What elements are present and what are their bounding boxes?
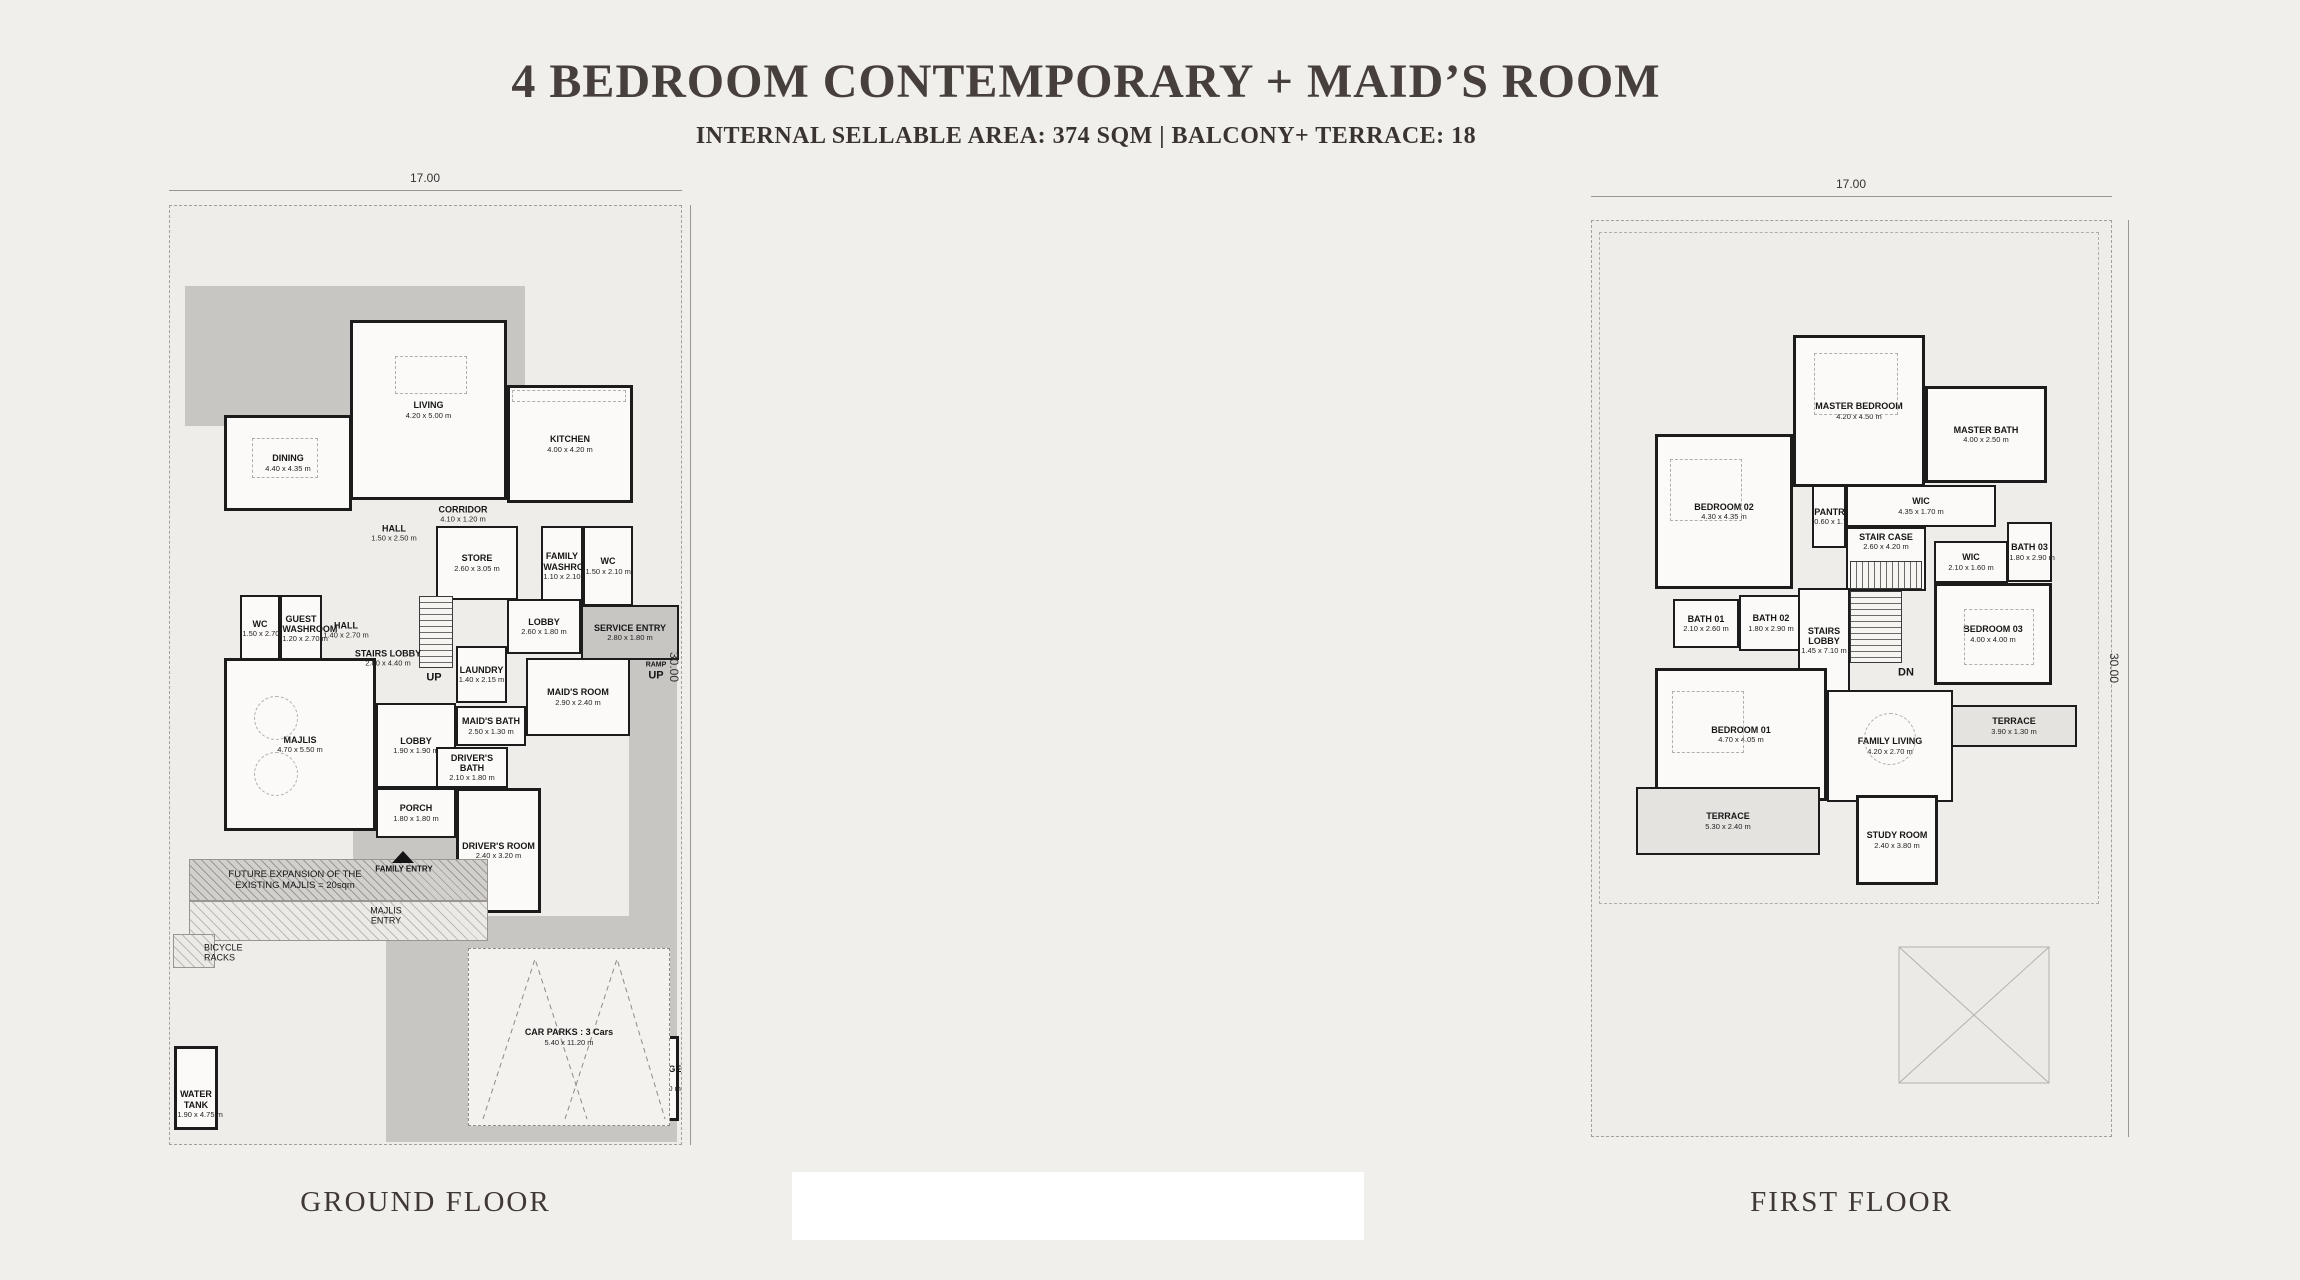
room-majlis: MAJLIS4.70 x 5.50 m (224, 658, 376, 831)
pergola-canopy (1893, 941, 2055, 1089)
ground-floor-plan: LIVING4.20 x 5.00 m KITCHEN4.00 x 4.20 m… (169, 205, 682, 1145)
bedroom-01-bed (1672, 691, 1744, 753)
room-wc-left: WC1.50 x 2.70 m (240, 595, 280, 662)
page-header: 4 BEDROOM CONTEMPORARY + MAID’S ROOM INT… (0, 54, 2172, 150)
majlis-table-1 (254, 696, 298, 740)
bedroom-02-bed (1670, 459, 1742, 521)
page-subtitle: INTERNAL SELLABLE AREA: 374 SQM | BALCON… (0, 123, 2172, 150)
label-corridor: CORRIDOR4.10 x 1.20 m (439, 504, 488, 523)
room-car-parks: CAR PARKS : 3 Cars5.40 x 11.20 m (468, 948, 670, 1126)
label-bicycle-racks: BICYCLE RACKS (204, 943, 256, 964)
first-dim-top-label: 17.00 (1836, 177, 1866, 191)
label-majlis-entry: MAJLIS ENTRY (363, 906, 409, 927)
room-bath-02: BATH 021.80 x 2.90 m (1739, 595, 1803, 651)
room-bath-01: BATH 012.10 x 2.60 m (1673, 599, 1739, 648)
master-bed (1814, 353, 1898, 415)
label-dn: DN (1898, 667, 1914, 680)
dining-table (252, 438, 318, 478)
ground-staircase (419, 596, 453, 668)
label-ramp-up: RAMP UP (646, 662, 667, 683)
stair-case-steps (1850, 561, 1922, 589)
room-maids-bath: MAID'S BATH2.50 x 1.30 m (456, 706, 526, 746)
room-maids-room: MAID'S ROOM2.90 x 2.40 m (526, 658, 630, 736)
first-floor-plan: MASTER BEDROOM4.20 x 4.50 m MASTER BATH4… (1591, 220, 2112, 1137)
first-staircase (1850, 591, 1902, 663)
page-title: 4 BEDROOM CONTEMPORARY + MAID’S ROOM (0, 54, 2172, 109)
label-stairs-lobby: STAIRS LOBBY2.80 x 4.40 m (355, 648, 421, 667)
label-family-entry: FAMILY ENTRY (375, 864, 433, 873)
ground-dim-side-label: 30.00 (667, 652, 681, 682)
first-dim-line-top (1591, 196, 2112, 197)
family-entry-arrow-icon (392, 851, 414, 863)
label-hall-upper: HALL1.50 x 2.50 m (371, 523, 416, 542)
ground-dim-line-side (690, 205, 691, 1145)
room-guest-washroom: GUEST WASHROOM1.20 x 2.70 m (280, 595, 322, 662)
ground-dim-top-label: 17.00 (410, 171, 440, 185)
room-water-tank: WATER TANK1.90 x 4.75 m (174, 1046, 218, 1130)
label-future-expansion: FUTURE EXPANSION OF THE EXISTING MAJLIS … (220, 870, 370, 892)
first-dim-side-label: 30.00 (2107, 653, 2121, 683)
room-porch: PORCH1.80 x 1.80 m (376, 788, 456, 838)
room-wic-long: WIC4.35 x 1.70 m (1846, 485, 1996, 527)
bedroom-03-bed (1964, 609, 2034, 665)
room-kitchen: KITCHEN4.00 x 4.20 m (507, 385, 633, 503)
room-family-washroom: FAMILY WASHROOM1.10 x 2.10 m (541, 526, 583, 606)
room-wc-upper: WC1.50 x 2.10 m (583, 526, 633, 606)
ground-floor-label: GROUND FLOOR (169, 1186, 682, 1219)
room-master-bath: MASTER BATH4.00 x 2.50 m (1925, 386, 2047, 483)
family-living-table (1864, 713, 1916, 765)
room-drivers-bath: DRIVER'S BATH2.10 x 1.80 m (436, 747, 508, 788)
kitchen-counter (512, 390, 626, 402)
room-pantry: PANTRY0.60 x 1.70 m (1812, 485, 1846, 548)
ground-dim-line-top (169, 190, 682, 191)
room-laundry: LAUNDRY1.40 x 2.15 m (456, 646, 507, 703)
first-dim-line-side (2128, 220, 2129, 1137)
future-expansion-hatch-light (189, 901, 488, 941)
watermark-placeholder (792, 1172, 1364, 1240)
room-terrace-bottom: TERRACE5.30 x 2.40 m (1636, 787, 1820, 855)
first-floor-label: FIRST FLOOR (1591, 1186, 2112, 1219)
room-lobby-upper: LOBBY2.60 x 1.80 m (507, 599, 581, 654)
living-sofa (395, 356, 467, 394)
room-store: STORE2.60 x 3.05 m (436, 526, 518, 600)
label-up: UP (426, 672, 441, 685)
room-living: LIVING4.20 x 5.00 m (350, 320, 507, 500)
room-wic-small: WIC2.10 x 1.60 m (1934, 541, 2008, 583)
room-study-room: STUDY ROOM2.40 x 3.80 m (1856, 795, 1938, 885)
room-bath-03: BATH 031.80 x 2.90 m (2007, 522, 2052, 582)
room-terrace-right: TERRACE3.90 x 1.30 m (1951, 705, 2077, 747)
room-service-entry: SERVICE ENTRY2.80 x 1.80 m (581, 605, 679, 660)
label-hall-mid: HALL1.40 x 2.70 m (323, 620, 368, 639)
majlis-table-2 (254, 752, 298, 796)
